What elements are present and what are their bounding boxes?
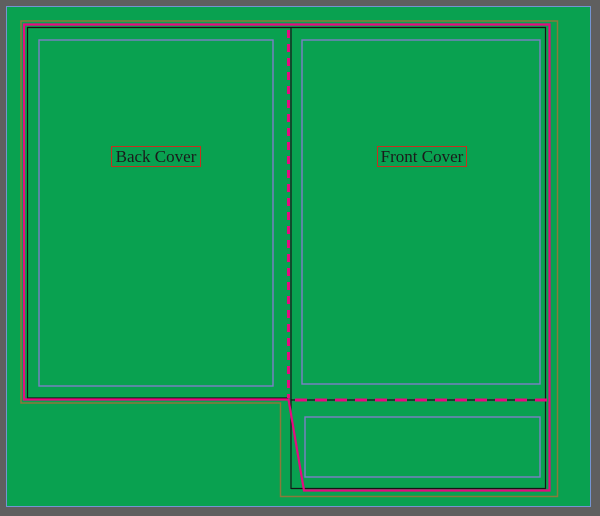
front-cover-label-box[interactable]: Front Cover: [377, 146, 467, 167]
document-viewer: Back Cover Front Cover: [0, 0, 600, 516]
artboard-page: [6, 6, 591, 507]
back-cover-label: Back Cover: [116, 147, 197, 167]
back-cover-label-box[interactable]: Back Cover: [111, 146, 201, 167]
front-cover-label: Front Cover: [381, 147, 464, 167]
